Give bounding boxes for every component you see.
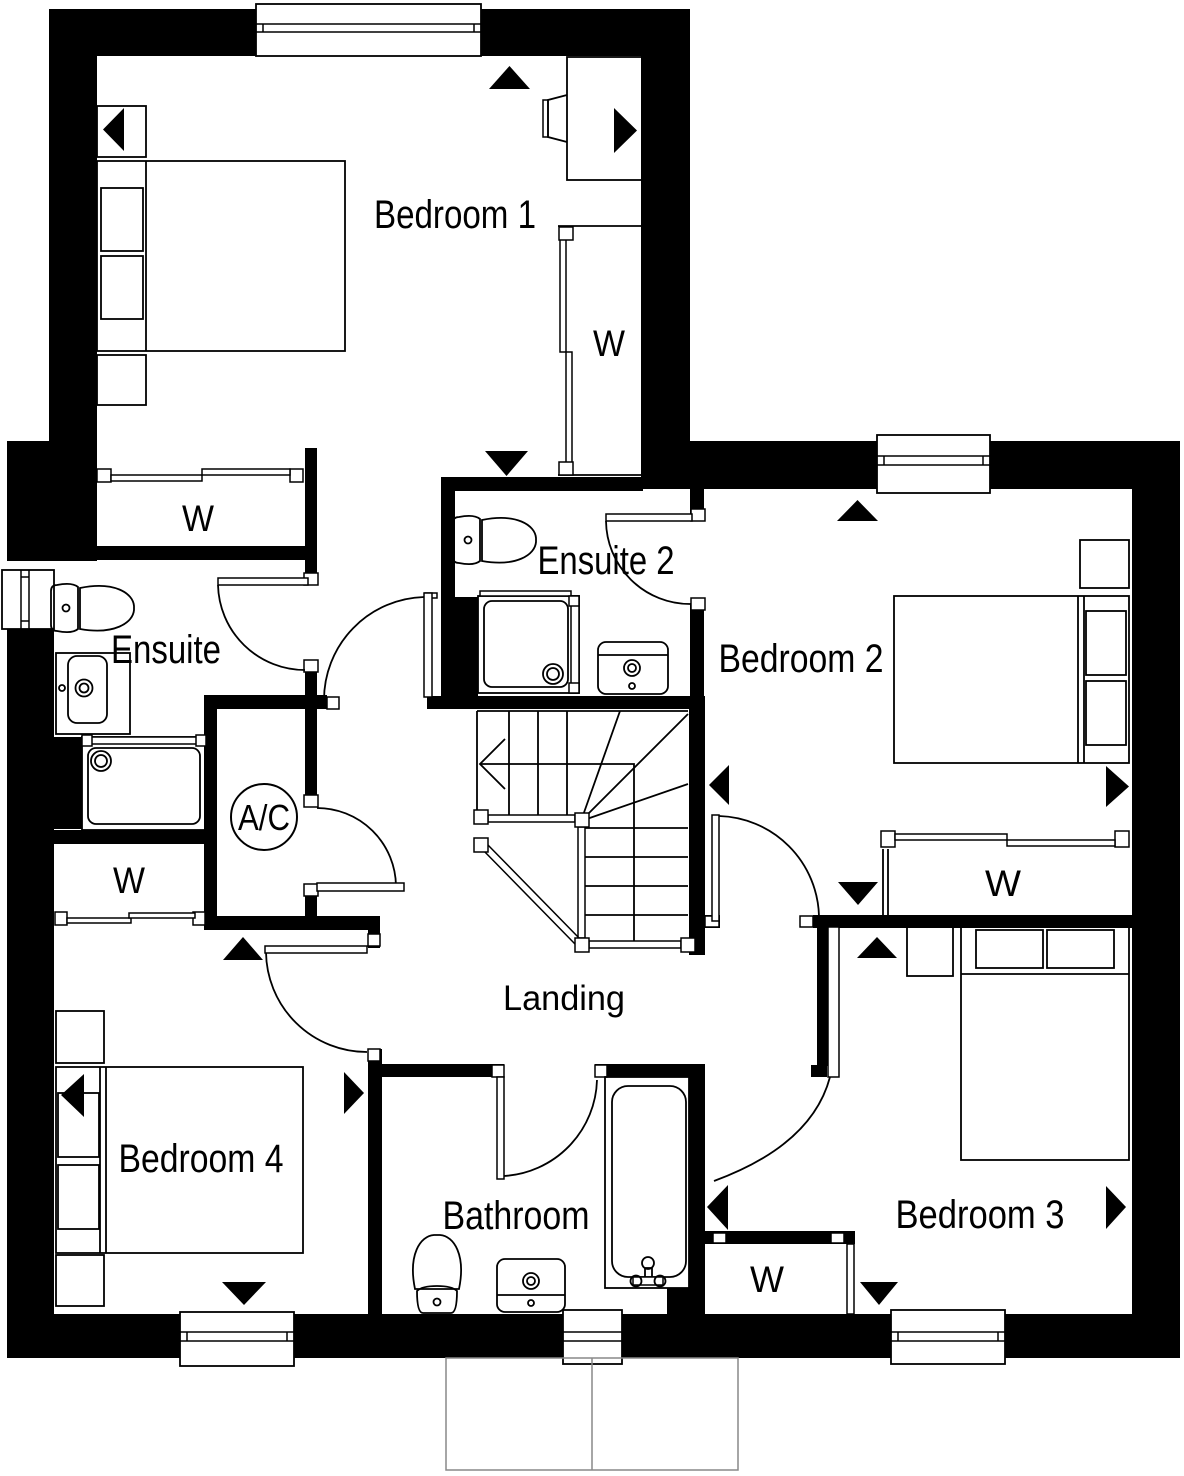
svg-text:W: W: [985, 863, 1021, 904]
svg-text:W: W: [750, 1259, 784, 1300]
svg-text:Landing: Landing: [503, 979, 625, 1018]
svg-text:Bedroom 4: Bedroom 4: [119, 1137, 284, 1181]
svg-text:Bedroom 3: Bedroom 3: [896, 1193, 1065, 1237]
svg-text:Bathroom: Bathroom: [443, 1194, 590, 1238]
svg-text:Ensuite 2: Ensuite 2: [538, 539, 675, 583]
svg-text:A/C: A/C: [238, 797, 290, 838]
svg-text:Ensuite: Ensuite: [111, 628, 221, 672]
svg-text:Bedroom 1: Bedroom 1: [374, 193, 536, 237]
svg-text:W: W: [113, 860, 145, 901]
svg-text:W: W: [182, 498, 214, 539]
svg-text:Bedroom 2: Bedroom 2: [719, 637, 884, 681]
svg-text:W: W: [593, 323, 625, 364]
